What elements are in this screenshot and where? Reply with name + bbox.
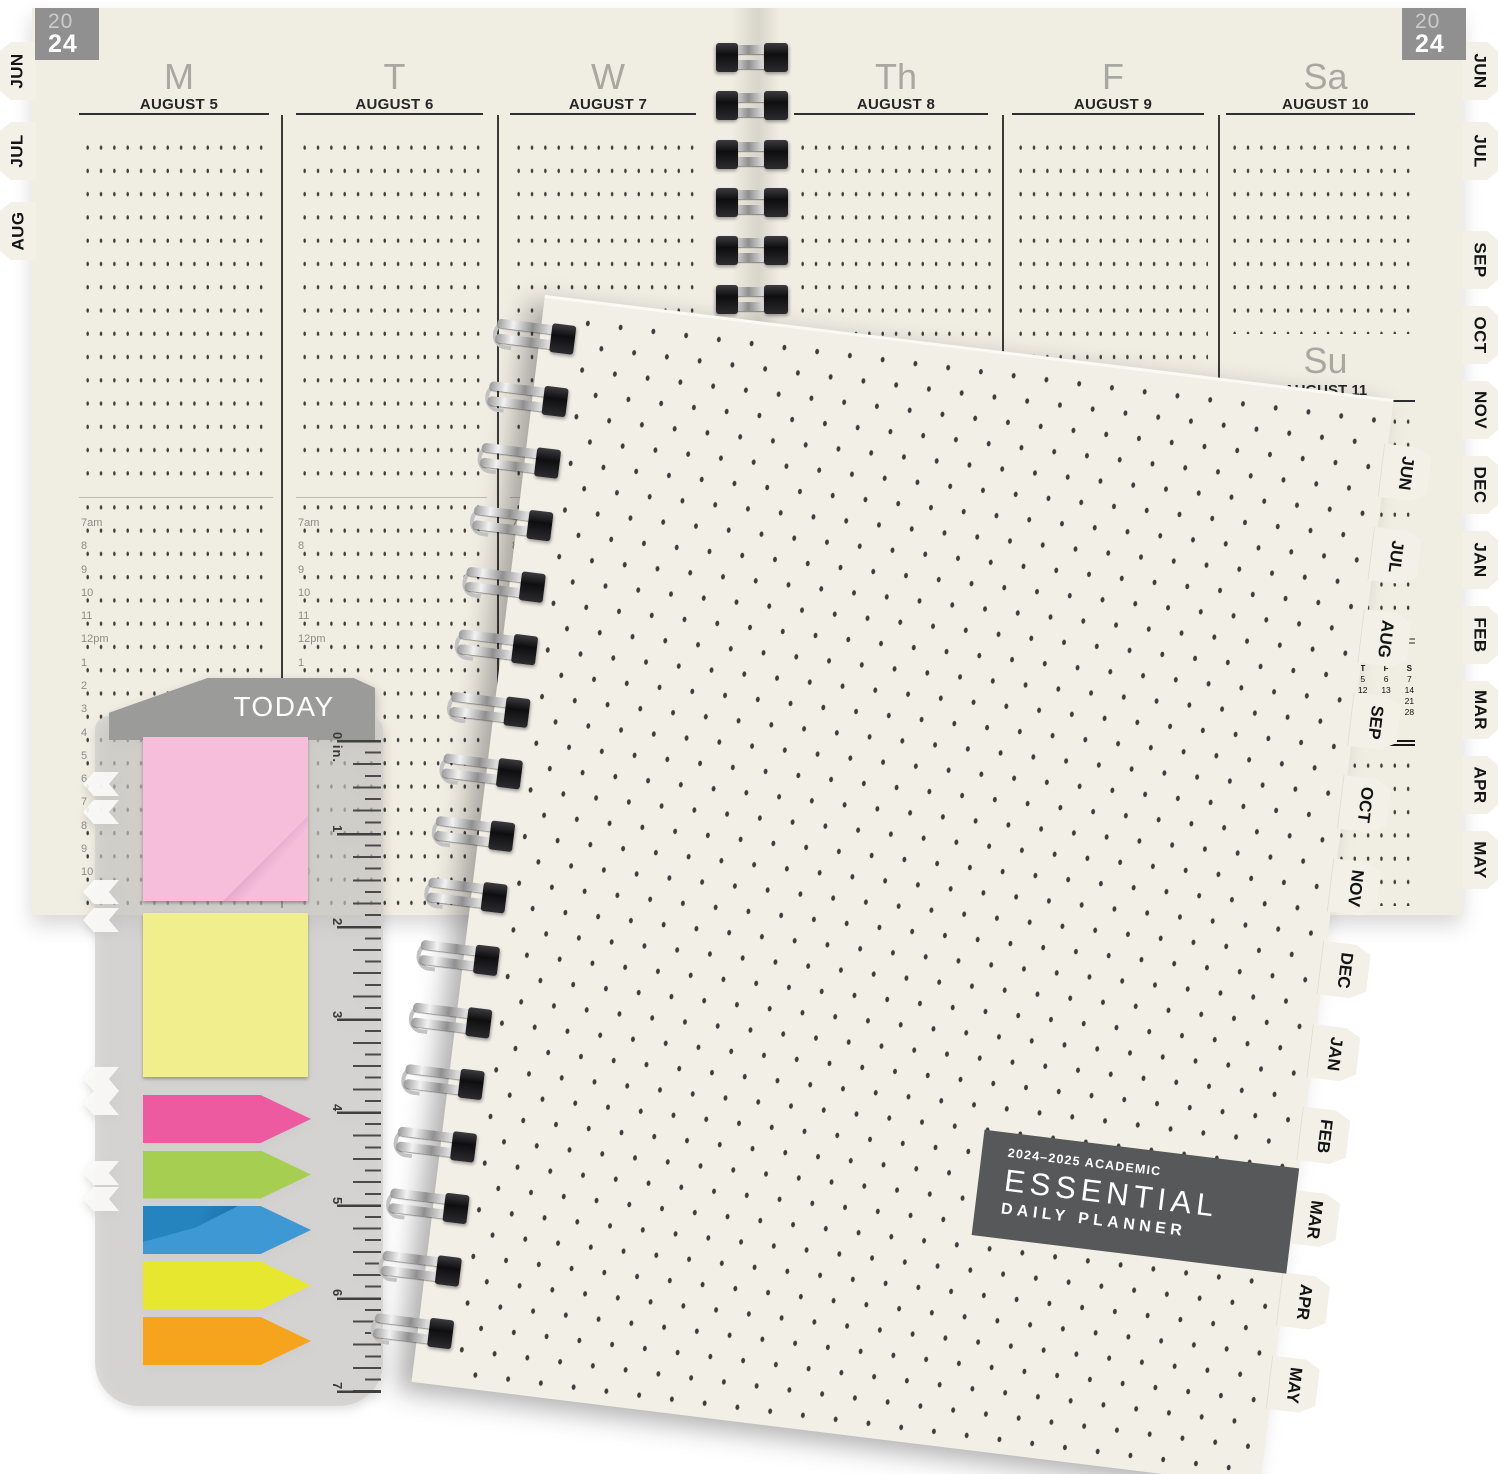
year-badge-bottom: 24: [1415, 32, 1466, 58]
day-header-rule: [79, 113, 269, 115]
cover-dot-grid: [452, 313, 1386, 1474]
day-letter: M: [75, 56, 283, 98]
time-label: 7am: [298, 517, 319, 529]
ruler-number: 1: [330, 825, 345, 833]
time-label: 1: [298, 657, 304, 669]
month-tab: DEC: [1317, 941, 1372, 1001]
month-tab-label: SEP: [1470, 242, 1490, 277]
month-tab-label: MAY: [1282, 1366, 1306, 1404]
spiral-binding-coil: [385, 1186, 476, 1227]
month-tab-label: OCT: [1470, 316, 1490, 353]
month-tab: JUL: [1462, 122, 1498, 180]
spiral-binding-coil: [400, 1061, 491, 1102]
notes-schedule-divider: [296, 497, 487, 498]
inch-ruler: 0 in.1234567: [333, 740, 381, 1400]
ruler-number: 2: [330, 918, 345, 926]
planner-product-photo: 20 24 20 24 JUN JUL AUG JUN JUL: [0, 0, 1500, 1474]
time-label: 3: [81, 703, 87, 715]
day-letter: F: [1008, 56, 1218, 98]
month-tab: APR: [1462, 756, 1498, 814]
time-label: 1: [81, 657, 87, 669]
day-date: AUGUST 5: [75, 96, 283, 113]
mini-calendar-day: 14: [1398, 685, 1421, 696]
time-label: 2: [81, 680, 87, 692]
time-label: 7: [81, 796, 87, 808]
spiral-binding-coil: [407, 1000, 498, 1041]
time-label: 9: [81, 843, 87, 855]
spiral-binding-coil: [714, 236, 794, 266]
planner-front-cover: JUN JUL AUG SEP OCT NOV DEC JAN FEB MAR …: [412, 295, 1394, 1474]
sticky-note: [143, 737, 308, 901]
spiral-binding-coil: [377, 1248, 468, 1289]
month-tab: FEB: [1462, 606, 1498, 664]
year-badge: 20 24: [1402, 8, 1466, 60]
bookmark-header: TODAY: [109, 678, 375, 740]
month-tab-label: DEC: [1470, 466, 1490, 503]
month-tab-label: JAN: [1470, 542, 1490, 577]
time-label: 10: [298, 587, 310, 599]
month-tab-label: AUG: [8, 212, 28, 251]
day-date: AUGUST 7: [506, 96, 710, 113]
year-badge-top: 20: [48, 11, 99, 32]
month-tab: MAY: [1462, 831, 1498, 889]
month-tab-label: SEP: [1363, 704, 1387, 740]
time-label: 8: [81, 540, 87, 552]
time-label: 9: [298, 564, 304, 576]
ruler-number: 3: [330, 1011, 345, 1019]
spiral-binding-coil: [714, 43, 794, 73]
time-label: 11: [298, 610, 309, 622]
month-tab-label: FEB: [1470, 617, 1490, 652]
month-tab: MAY: [1266, 1355, 1321, 1415]
month-tab-label: JUN: [1394, 455, 1418, 491]
month-tab-label: JUN: [8, 53, 28, 88]
day-date: AUGUST 9: [1008, 96, 1218, 113]
spiral-binding-coil: [392, 1124, 483, 1165]
mini-calendar-day: [1398, 718, 1421, 729]
time-label: 7am: [81, 517, 102, 529]
spiral-binding-coil: [714, 285, 794, 315]
month-tab-label: APR: [1470, 766, 1490, 803]
mini-calendar-day: 28: [1398, 707, 1421, 718]
mini-calendar-day: 13: [1374, 685, 1397, 696]
today-ruler-bookmark: TODAY 0 in.1234567: [93, 678, 385, 1408]
month-tab-label: JUL: [8, 134, 28, 167]
day-date: AUGUST 8: [790, 96, 1002, 113]
notes-schedule-divider: [79, 497, 273, 498]
dot-grid-notes-area: [298, 136, 487, 492]
month-tab-label: MAR: [1302, 1199, 1327, 1240]
month-tab-label: AUG: [1373, 619, 1397, 659]
month-tab-label: FEB: [1312, 1118, 1336, 1154]
day-header-rule: [1012, 113, 1204, 115]
month-tab: MAR: [1462, 681, 1498, 739]
time-label: 12pm: [298, 633, 326, 645]
time-label: 9: [81, 564, 87, 576]
month-tab-label: NOV: [1470, 391, 1490, 429]
month-tab: APR: [1276, 1272, 1331, 1332]
dot-grid-notes-area: [81, 136, 273, 492]
year-badge-bottom: 24: [48, 32, 99, 58]
time-label: 12pm: [81, 633, 109, 645]
day-header-rule: [794, 113, 988, 115]
time-label: 8: [81, 820, 87, 832]
month-tab: JUN: [0, 42, 36, 100]
month-tab-label: NOV: [1343, 868, 1367, 907]
day-date: AUGUST 6: [292, 96, 497, 113]
sticky-note: [143, 913, 308, 1077]
mini-calendar-day: 6: [1374, 674, 1397, 685]
month-tab: AUG: [0, 202, 36, 260]
month-tab: FEB: [1296, 1106, 1351, 1166]
year-badge: 20 24: [35, 8, 99, 60]
month-tab-label: JUL: [1384, 539, 1408, 573]
month-tab: OCT: [1462, 306, 1498, 364]
year-badge-top: 20: [1415, 11, 1466, 32]
month-tab-label: JAN: [1322, 1035, 1346, 1071]
mini-calendar-day: 21: [1398, 696, 1421, 707]
month-tab-label: MAR: [1470, 690, 1490, 730]
day-header-rule: [510, 113, 696, 115]
ruler-number: 7: [330, 1382, 345, 1390]
month-tab: JAN: [1462, 531, 1498, 589]
month-tab-label: OCT: [1353, 786, 1377, 824]
time-label: 10: [81, 587, 93, 599]
time-label: 11: [81, 610, 92, 622]
mini-calendar-day: 7: [1398, 674, 1421, 685]
month-tab: JAN: [1306, 1024, 1361, 1084]
spiral-binding-coil: [714, 140, 794, 170]
month-tab: JUN: [1462, 42, 1498, 100]
mini-calendar-weekday: S: [1398, 663, 1421, 674]
ruler-number: 0 in.: [330, 732, 345, 763]
spiral-binding-coil: [415, 937, 506, 978]
month-tab: SEP: [1462, 231, 1498, 289]
ruler-number: 6: [330, 1289, 345, 1297]
spiral-binding-coil: [714, 91, 794, 121]
ruler-number: 4: [330, 1104, 345, 1112]
time-label: 5: [81, 750, 87, 762]
ruler-number: 5: [330, 1197, 345, 1205]
spiral-binding-coil: [714, 188, 794, 218]
month-tab-label: JUN: [1470, 53, 1490, 88]
month-tab: DEC: [1462, 456, 1498, 514]
day-letter: T: [292, 56, 497, 98]
month-tab: NOV: [1462, 381, 1498, 439]
time-label: 8: [298, 540, 304, 552]
month-tab: JUL: [0, 122, 36, 180]
bookmark-title: TODAY: [199, 691, 369, 723]
time-label: 4: [81, 727, 87, 739]
time-label: 10: [81, 866, 93, 878]
day-letter: Su: [1222, 340, 1429, 382]
day-header-rule: [296, 113, 483, 115]
month-tab-label: APR: [1292, 1283, 1316, 1321]
month-tab-label: DEC: [1333, 951, 1357, 989]
day-letter: Th: [790, 56, 1002, 98]
day-letter: W: [506, 56, 710, 98]
month-tab-label: JUL: [1470, 134, 1490, 167]
month-tab-label: MAY: [1470, 841, 1490, 878]
